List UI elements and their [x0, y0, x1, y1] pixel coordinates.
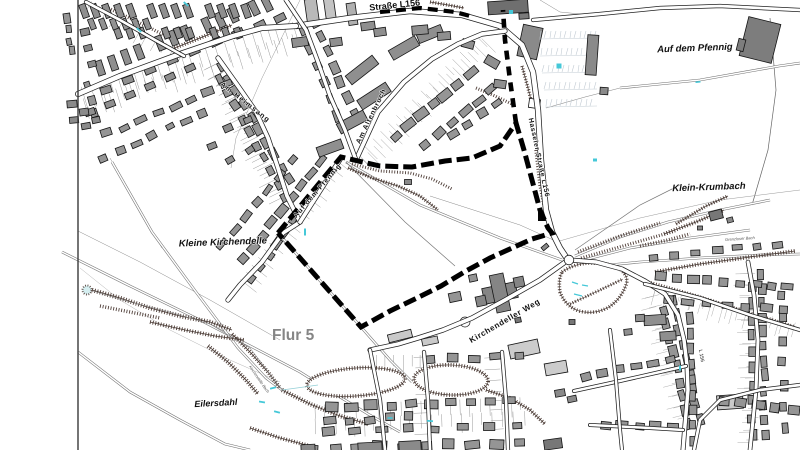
svg-text:Flur 5: Flur 5	[272, 327, 315, 344]
